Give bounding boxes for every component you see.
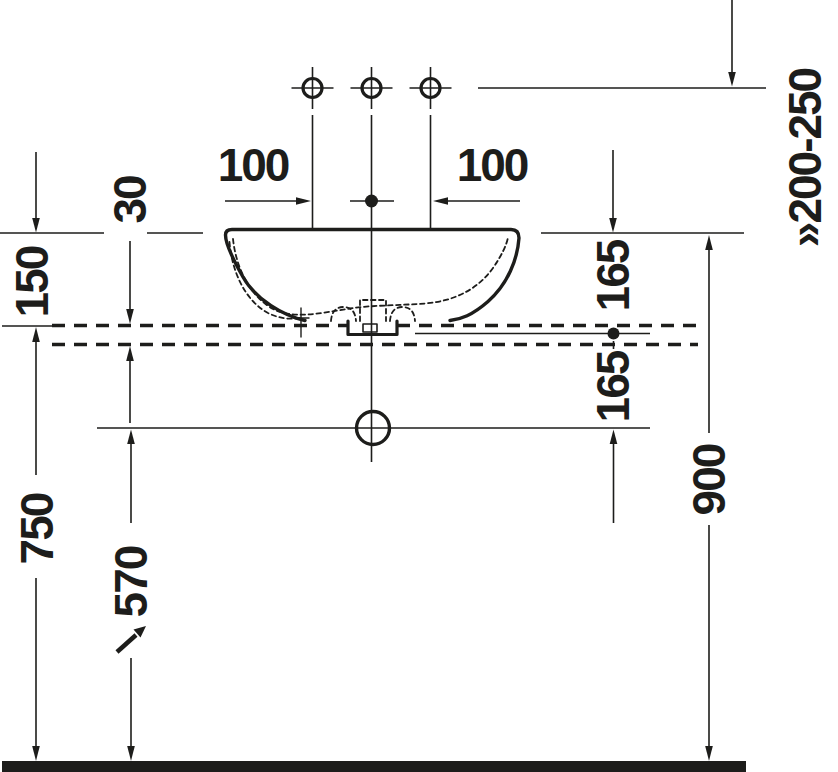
dim-900-label: 900 bbox=[683, 444, 735, 515]
washbasin-dimension-diagram: »200-250 100 100 bbox=[0, 0, 838, 772]
center-reference-dot bbox=[365, 195, 378, 208]
faucet-spacing-dimensions: 100 100 bbox=[218, 139, 528, 208]
faucet-hole-left-icon bbox=[292, 67, 334, 109]
arrow-up-icon bbox=[127, 430, 135, 445]
faucet-hole-markers bbox=[292, 67, 452, 462]
arrow-down-icon bbox=[32, 218, 40, 233]
technical-drawing-canvas: »200-250 100 100 bbox=[0, 0, 838, 772]
faucet-hole-center-icon bbox=[351, 67, 393, 109]
northeast-arrow-icon bbox=[117, 626, 146, 652]
basin-inner-contour-2 bbox=[230, 242, 301, 319]
dim-150-label: 150 bbox=[6, 246, 58, 317]
arrow-down-icon bbox=[728, 72, 736, 87]
dim-570-label: 570 bbox=[105, 546, 157, 617]
dim-30-label: 30 bbox=[104, 176, 156, 224]
arrow-down-icon bbox=[609, 218, 617, 233]
drain-flange-detail bbox=[363, 324, 377, 332]
dim-165-lower: 165 bbox=[587, 341, 639, 523]
arrow-up-icon bbox=[32, 327, 40, 342]
arrow-up-icon bbox=[610, 430, 618, 445]
basin-inner-contour bbox=[233, 237, 508, 315]
arrow-left-icon bbox=[433, 197, 448, 205]
dim-750: 750 bbox=[11, 327, 63, 761]
basin-foot-arch-right bbox=[390, 307, 415, 321]
dim-900: 900 bbox=[683, 235, 735, 761]
dim-165-upper: 165 bbox=[587, 150, 639, 311]
floor-bar bbox=[2, 761, 746, 772]
faucet-height-dimension: »200-250 bbox=[478, 0, 831, 247]
dim-165-upper-label: 165 bbox=[587, 239, 639, 311]
arrow-down-icon bbox=[126, 309, 134, 324]
dim-570: 570 bbox=[105, 430, 157, 762]
drain-outlet bbox=[97, 412, 650, 445]
basin-drain-pipe-hidden bbox=[360, 300, 386, 321]
arrow-up-icon bbox=[705, 235, 713, 250]
mid-reference-dot bbox=[608, 328, 620, 340]
arrow-down-icon bbox=[127, 746, 135, 761]
dim-750-label: 750 bbox=[11, 493, 63, 564]
arrow-up-icon bbox=[126, 346, 134, 361]
dim-150: 150 bbox=[6, 152, 58, 317]
dim-30: 30 bbox=[104, 176, 156, 423]
arrow-right-icon bbox=[296, 197, 311, 205]
arrow-down-icon bbox=[705, 746, 713, 761]
dim-100-left-label: 100 bbox=[218, 139, 289, 191]
dim-100-right-label: 100 bbox=[457, 139, 528, 191]
dim-faucet-range-label: »200-250 bbox=[779, 68, 831, 247]
dim-165-lower-label: 165 bbox=[587, 350, 639, 422]
arrow-down-icon bbox=[32, 746, 40, 761]
faucet-hole-right-icon bbox=[410, 67, 452, 109]
